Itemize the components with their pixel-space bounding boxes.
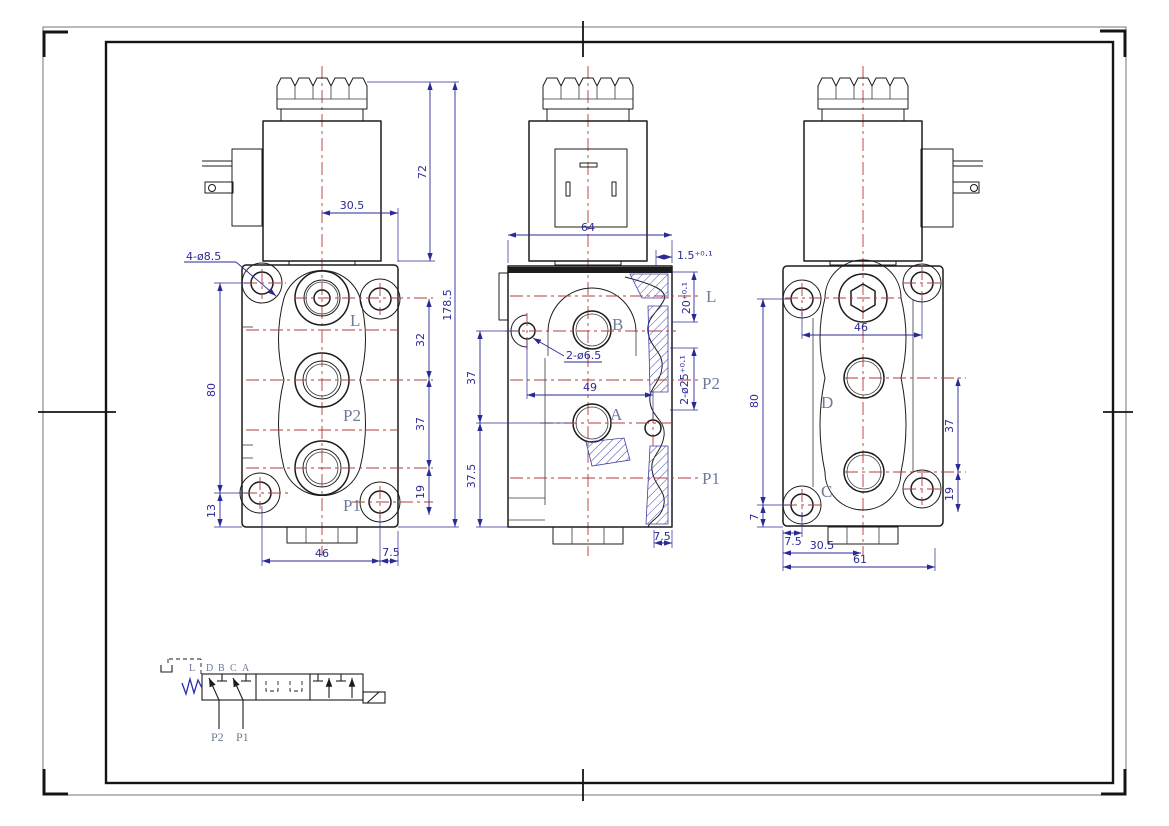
dim-178-5: 178.5 (441, 289, 454, 321)
back-view: 46 80 7 37 19 7.5 30.5 61 D C (748, 66, 983, 571)
dim-37: 37 (465, 371, 478, 385)
schematic-label-b: B (218, 663, 225, 674)
closed-centre-symbol (290, 681, 302, 691)
level-label-l: L (706, 287, 716, 306)
trim-border (43, 27, 1126, 795)
hatch-patch (648, 306, 668, 392)
port-label-b: B (612, 315, 623, 334)
dim-49: 49 (583, 381, 597, 394)
back-dimensions: 46 80 7 37 19 7.5 30.5 61 (748, 298, 958, 571)
front-view: 72 178.5 30.5 4-ø8.5 80 13 32 37 19 (184, 66, 459, 566)
valve-body-front (240, 263, 400, 543)
schematic-label-p1: P1 (236, 730, 249, 744)
dim-19: 19 (943, 487, 956, 501)
dim-30-5: 30.5 (810, 539, 835, 552)
side-tab (499, 273, 508, 320)
connector-face (555, 149, 627, 227)
dim-30-5: 30.5 (340, 199, 365, 212)
connector-right (921, 149, 983, 227)
note-2-holes: 2-ø6.5 (566, 349, 601, 362)
level-label-p1: P1 (702, 469, 720, 488)
dim-7-5: 7.5 (784, 535, 802, 548)
corner-mark-tl (44, 32, 68, 57)
dim-80: 80 (748, 394, 761, 408)
dim-2d25: 2-ø25⁺⁰·¹ (678, 355, 691, 405)
dim-13: 13 (205, 504, 218, 518)
section-view: 64 1.5⁺⁰·¹ 20⁺⁰·¹ 2-ø25⁺⁰·¹ 2-ø6.5 49 37 (465, 66, 720, 556)
connector-left (202, 149, 262, 226)
mounting-face-band (508, 267, 672, 273)
dim-46: 46 (315, 547, 329, 560)
port-label-p2: P2 (343, 406, 361, 425)
front-dimensions: 72 178.5 30.5 4-ø8.5 80 13 32 37 19 (184, 82, 459, 566)
corner-mark-bl (44, 769, 68, 794)
dim-1-5: 1.5⁺⁰·¹ (677, 249, 713, 262)
valve-body-section (499, 266, 672, 544)
dim-37-5: 37.5 (465, 464, 478, 489)
schematic-label-c: C (230, 663, 237, 674)
level-label-p2: P2 (702, 374, 720, 393)
dim-20: 20⁺⁰·¹ (680, 282, 693, 314)
hatch-patch (630, 274, 668, 298)
connector-slot-left (566, 182, 570, 196)
note-4-holes: 4-ø8.5 (186, 250, 221, 263)
dim-19: 19 (414, 485, 427, 499)
schematic-label-d: D (206, 663, 213, 674)
solenoid-symbol (363, 692, 385, 703)
dim-7-5: 7.5 (653, 530, 671, 543)
port-label-d: D (821, 393, 833, 412)
schematic-label-l: L (189, 663, 195, 674)
valve-symbol-body (202, 674, 363, 700)
port-label-l: L (350, 311, 360, 330)
hydraulic-schematic: L D B C A P2 P1 (161, 659, 385, 744)
drawing-sheet: 72 178.5 30.5 4-ø8.5 80 13 32 37 19 (0, 0, 1169, 826)
schematic-label-a: A (242, 663, 250, 674)
schematic-label-p2: P2 (211, 730, 224, 744)
dim-7: 7 (748, 514, 761, 521)
port-label-p1: P1 (343, 496, 361, 515)
hatch-patch (586, 438, 630, 466)
dim-32: 32 (414, 333, 427, 347)
port-label-a: A (610, 405, 623, 424)
closed-centre-symbol (266, 681, 278, 691)
connector-slot-top (580, 163, 597, 167)
dim-37: 37 (943, 419, 956, 433)
connector-slot-right (612, 182, 616, 196)
dim-72: 72 (416, 165, 429, 179)
tank-symbol (161, 665, 172, 672)
dim-7-5: 7.5 (382, 546, 400, 559)
dim-61: 61 (853, 553, 867, 566)
spring-symbol (182, 679, 202, 694)
dim-46: 46 (854, 321, 868, 334)
valve-technical-drawing: 72 178.5 30.5 4-ø8.5 80 13 32 37 19 (0, 0, 1169, 826)
dim-80: 80 (205, 383, 218, 397)
hatch-patch (646, 446, 668, 524)
dim-64: 64 (581, 221, 595, 234)
dim-37: 37 (414, 417, 427, 431)
port-label-c: C (821, 482, 832, 501)
